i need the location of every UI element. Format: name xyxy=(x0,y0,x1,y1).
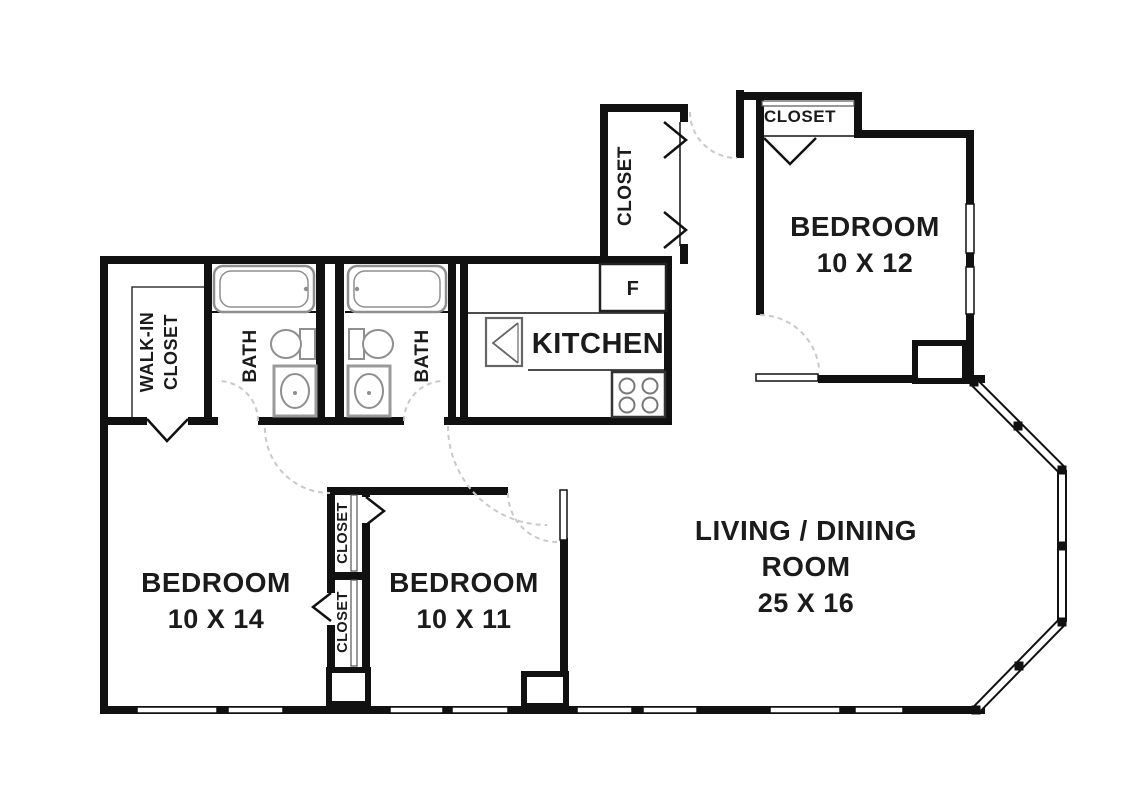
stove-icon xyxy=(612,372,665,417)
bedroom-top-door-swing xyxy=(760,315,819,368)
bathtub-icon xyxy=(348,266,446,312)
utility-chase xyxy=(329,670,368,704)
window-icon xyxy=(643,707,697,713)
bay-window-mullions xyxy=(970,378,1067,715)
bath-right-label: BATH xyxy=(412,329,433,382)
toilet-icon xyxy=(271,329,315,359)
hall-closet-bifold-icon xyxy=(664,122,686,158)
window-icon xyxy=(228,707,283,713)
window-icon xyxy=(966,204,974,253)
bedroom-top-right-label: BEDROOM xyxy=(790,211,940,242)
window-icon xyxy=(855,707,903,713)
utility-chase xyxy=(524,674,566,706)
window-seat xyxy=(915,343,965,381)
sink-icon xyxy=(348,366,390,416)
window-icon xyxy=(577,707,632,713)
kitchen-label: KITCHEN xyxy=(532,328,664,360)
closet-shelf-line xyxy=(351,580,357,666)
bedroom-top-right-dims: 10 X 12 xyxy=(817,248,914,278)
hall-door-swing xyxy=(448,426,547,525)
window-icon xyxy=(390,707,443,713)
refrigerator-label: F xyxy=(627,278,640,300)
walk-in-closet-label-line1: WALK-IN xyxy=(137,312,157,392)
bedroom-bottom-left-label: BEDROOM xyxy=(141,567,291,598)
kitchen-sink-icon xyxy=(486,318,522,366)
bay-window xyxy=(970,378,1067,715)
window-icon xyxy=(770,707,840,713)
walk-in-closet-bifold-icon xyxy=(147,419,188,441)
middle-closet-upper-bifold-icon xyxy=(366,497,384,525)
window-icon xyxy=(452,707,508,713)
window-icon xyxy=(966,267,974,314)
bedroom-bottom-middle-label: BEDROOM xyxy=(389,567,539,598)
entry-door-swing xyxy=(690,112,737,158)
bath-left-label: BATH xyxy=(240,329,261,382)
toilet-icon xyxy=(349,329,393,359)
bathtub-icon xyxy=(214,266,314,312)
bath-right-door-swing xyxy=(404,381,444,421)
floor-plan-canvas: CLOSET CLOSET BEDROOM 10 X 12 F KITCHEN … xyxy=(0,0,1140,800)
bedroom-left-door-swing xyxy=(265,428,330,493)
living-dining-dims: 25 X 16 xyxy=(758,588,855,618)
middle-closet-lower-label: CLOSET xyxy=(335,591,351,653)
closet-shelf-line xyxy=(762,101,854,106)
walk-in-closet-label-line2: CLOSET xyxy=(161,314,181,390)
bedroom-middle-door-swing xyxy=(508,493,557,542)
floor-plan-drawing: CLOSET CLOSET BEDROOM 10 X 12 F KITCHEN … xyxy=(0,0,1140,800)
middle-closet-lower-bifold-icon xyxy=(313,593,331,621)
doorway-threshold xyxy=(756,374,818,381)
door-leaf xyxy=(560,490,567,540)
sink-icon xyxy=(274,366,316,416)
living-dining-label-line2: ROOM xyxy=(761,551,850,582)
bedroom-closet-bifold-icon xyxy=(764,138,816,164)
bedroom-bottom-middle-dims: 10 X 11 xyxy=(416,604,511,634)
bedroom-bottom-left-dims: 10 X 14 xyxy=(168,604,265,634)
hall-closet-bifold-icon xyxy=(664,212,686,248)
closet-shelf-line xyxy=(351,495,357,571)
window-icon xyxy=(137,707,217,713)
middle-closet-upper-label: CLOSET xyxy=(335,502,351,564)
bedroom-top-closet-label: CLOSET xyxy=(764,107,836,126)
hall-closet-label: CLOSET xyxy=(615,146,636,226)
living-dining-label-line1: LIVING / DINING xyxy=(695,515,917,546)
bath-left-door-swing xyxy=(218,381,258,421)
